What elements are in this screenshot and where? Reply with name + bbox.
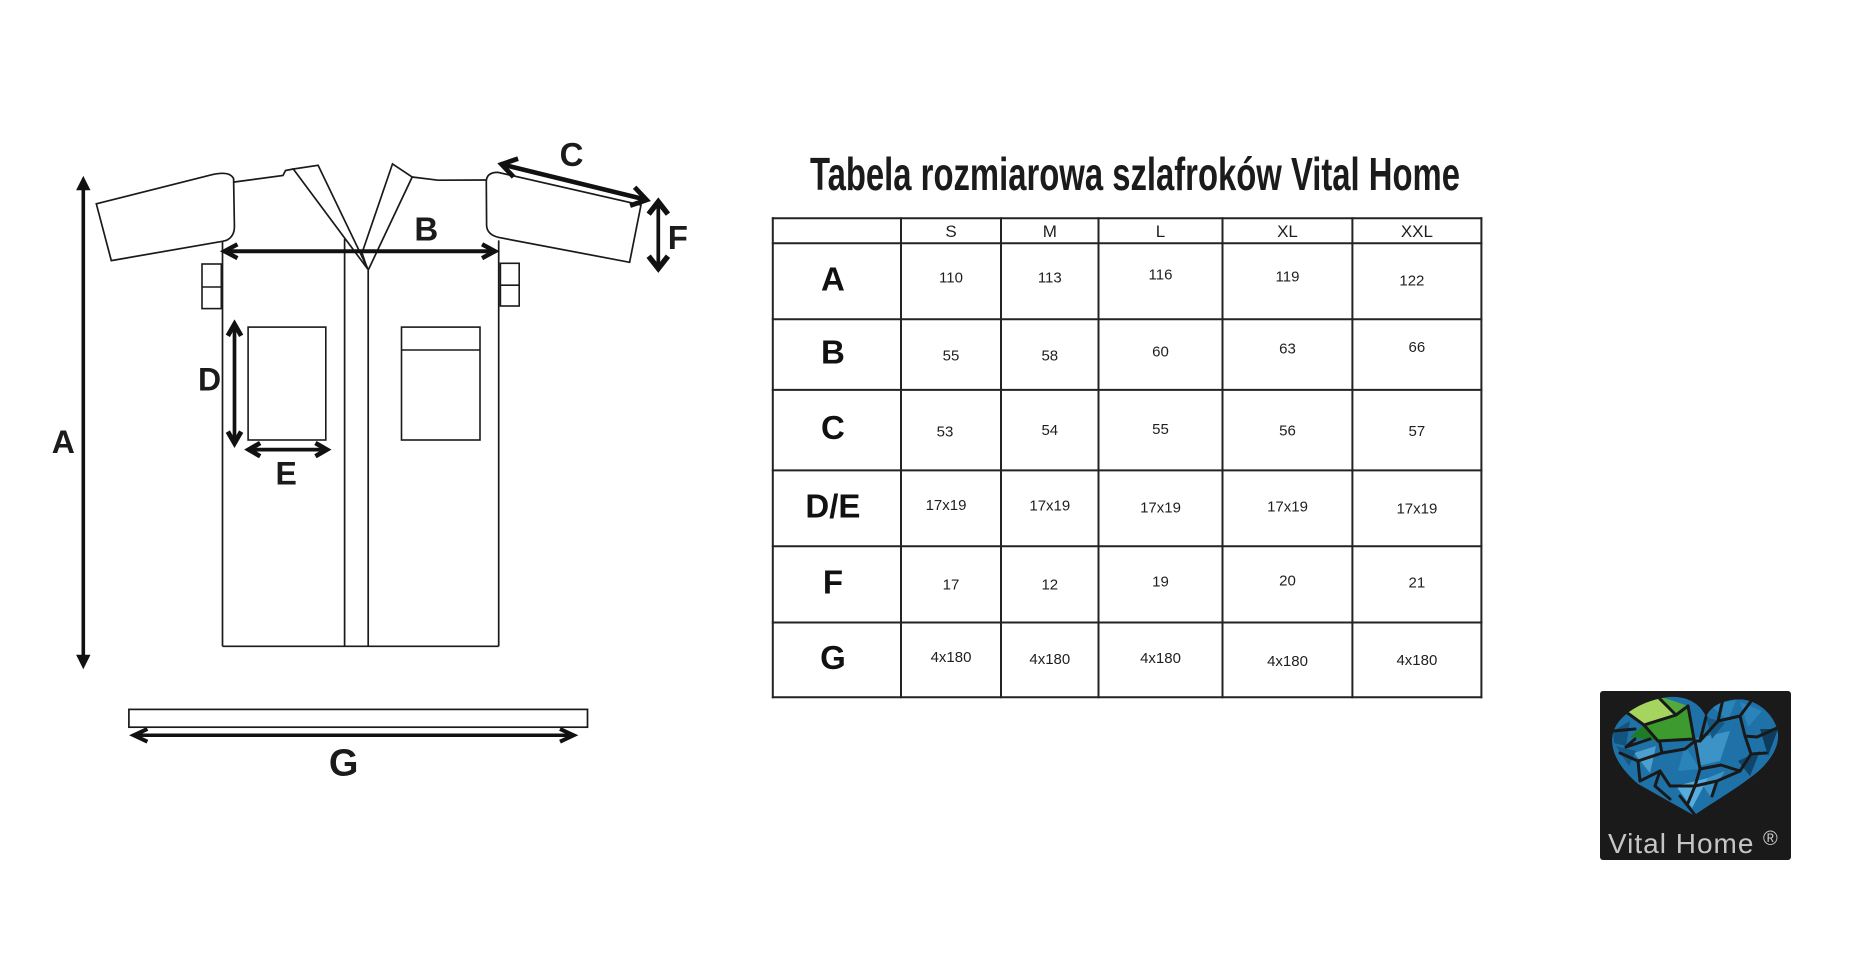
svg-text:12: 12	[1041, 576, 1058, 593]
svg-text:19: 19	[1152, 573, 1169, 590]
svg-text:F: F	[823, 563, 843, 600]
svg-text:F: F	[668, 219, 688, 256]
svg-text:110: 110	[939, 269, 963, 286]
svg-text:4x180: 4x180	[1140, 650, 1181, 667]
svg-text:17x19: 17x19	[1267, 498, 1308, 515]
svg-text:63: 63	[1279, 341, 1296, 358]
svg-text:E: E	[276, 455, 297, 491]
svg-text:Tabela rozmiarowa szlafroków V: Tabela rozmiarowa szlafroków Vital Home	[810, 148, 1460, 200]
svg-text:60: 60	[1152, 344, 1169, 361]
svg-text:17x19: 17x19	[1140, 499, 1181, 516]
svg-text:56: 56	[1279, 423, 1296, 440]
svg-text:XXL: XXL	[1401, 222, 1433, 241]
svg-text:66: 66	[1409, 339, 1426, 356]
svg-text:Vital Home: Vital Home	[1608, 828, 1754, 859]
svg-text:XL: XL	[1277, 222, 1298, 241]
svg-text:122: 122	[1399, 272, 1424, 289]
svg-text:113: 113	[1038, 269, 1062, 286]
svg-text:119: 119	[1276, 268, 1300, 285]
svg-text:55: 55	[943, 348, 960, 365]
svg-text:17x19: 17x19	[1029, 497, 1070, 514]
svg-text:58: 58	[1041, 348, 1058, 365]
svg-text:A: A	[52, 424, 75, 460]
svg-text:55: 55	[1152, 421, 1169, 438]
svg-text:D/E: D/E	[805, 487, 860, 524]
svg-text:G: G	[329, 743, 359, 785]
svg-text:17x19: 17x19	[926, 497, 967, 514]
svg-text:D: D	[198, 361, 221, 397]
svg-text:53: 53	[937, 424, 954, 441]
svg-text:C: C	[821, 409, 845, 446]
svg-text:17: 17	[943, 576, 960, 593]
svg-text:57: 57	[1409, 423, 1426, 440]
svg-text:L: L	[1156, 222, 1165, 241]
svg-text:B: B	[414, 211, 438, 248]
svg-text:20: 20	[1279, 572, 1296, 589]
svg-text:B: B	[821, 334, 845, 371]
svg-text:®: ®	[1763, 828, 1778, 850]
svg-text:C: C	[560, 136, 584, 173]
svg-text:21: 21	[1409, 574, 1426, 591]
svg-text:4x180: 4x180	[931, 649, 972, 666]
svg-text:116: 116	[1149, 266, 1173, 283]
svg-text:17x19: 17x19	[1396, 500, 1437, 517]
svg-text:54: 54	[1041, 422, 1058, 439]
svg-text:4x180: 4x180	[1267, 653, 1308, 670]
svg-text:4x180: 4x180	[1396, 652, 1437, 669]
svg-text:S: S	[945, 222, 956, 241]
svg-text:M: M	[1043, 222, 1057, 241]
svg-text:4x180: 4x180	[1029, 651, 1070, 668]
svg-text:G: G	[820, 639, 846, 676]
svg-text:A: A	[821, 260, 845, 297]
